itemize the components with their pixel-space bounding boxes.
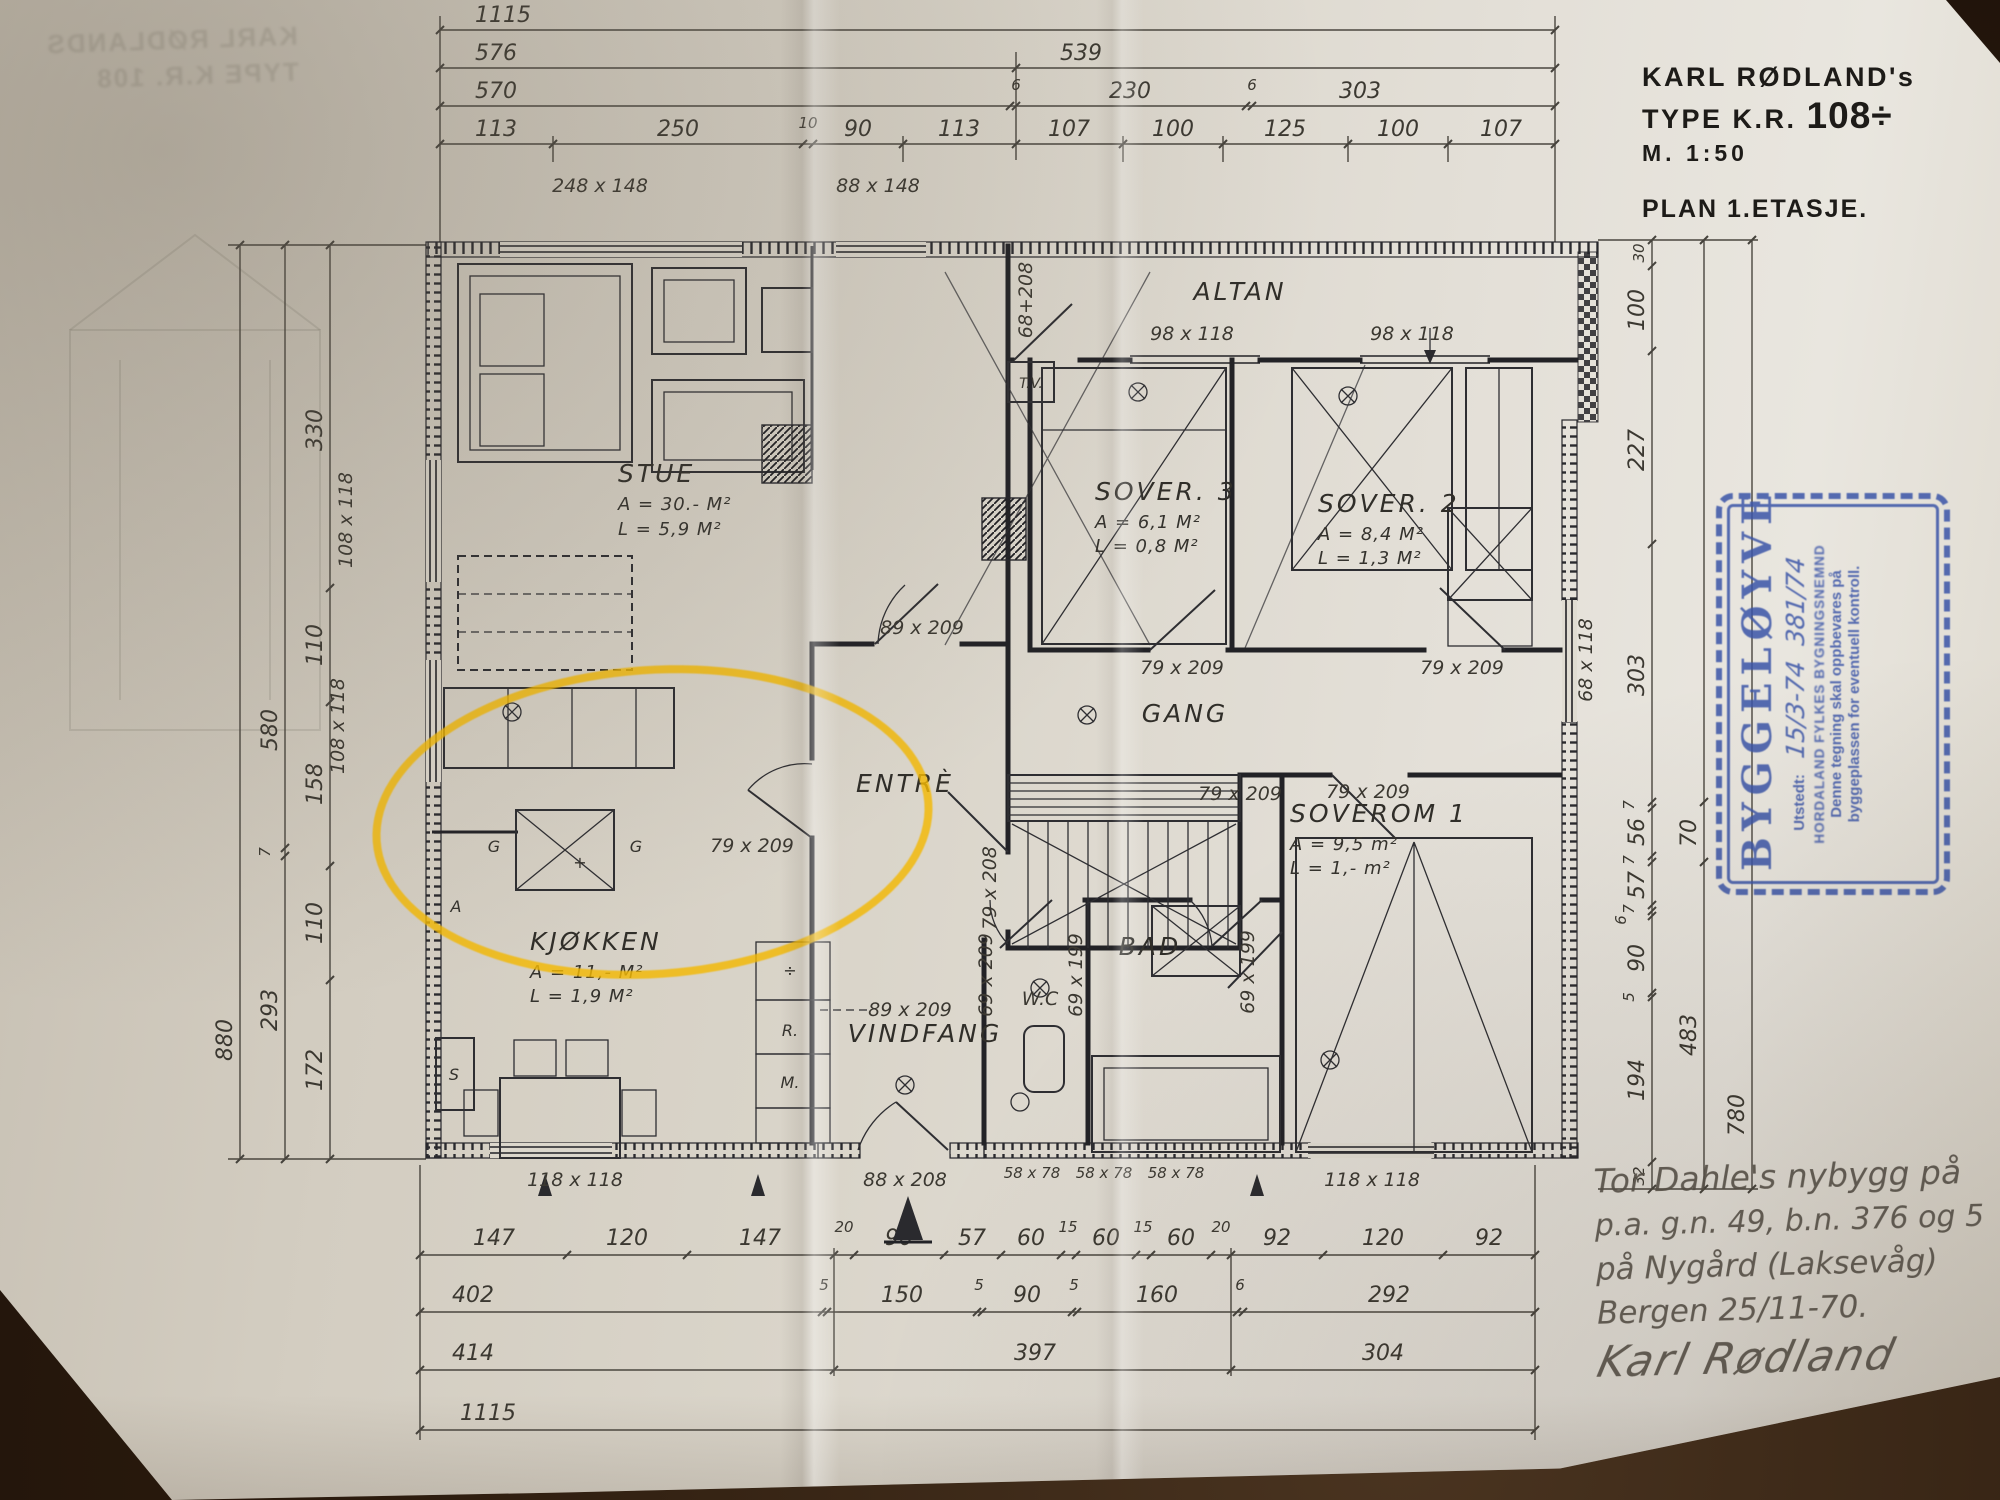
dim-label: 304 bbox=[1362, 1341, 1404, 1366]
dim-label: 15 bbox=[1058, 1218, 1077, 1236]
dim-label: 107 bbox=[1480, 117, 1522, 142]
dim-label: 580 bbox=[258, 709, 283, 751]
door-dim-label: 79 x 209 bbox=[1420, 657, 1504, 679]
dim-label: 570 bbox=[475, 79, 517, 104]
door-dim-label: 68+208 bbox=[1015, 262, 1037, 338]
type-prefix: TYPE K.R. bbox=[1642, 104, 1797, 134]
room-label-sover3: SOVER. 3 bbox=[1095, 477, 1237, 506]
note-line: på Nygård (Laksevåg) bbox=[1595, 1240, 2000, 1288]
dim-label: 60 bbox=[1017, 1226, 1045, 1251]
stamp-case-number: 381/74 bbox=[1781, 555, 1810, 647]
dim-label: 158 bbox=[303, 763, 328, 805]
dim-label: 293 bbox=[258, 989, 283, 1031]
window-dim-label: 118 x 118 bbox=[527, 1169, 623, 1191]
dim-label: 100 bbox=[1152, 117, 1194, 142]
dim-label: 6 bbox=[1235, 1276, 1245, 1294]
dim-label: 90 bbox=[844, 117, 872, 142]
room-label-gang: GANG bbox=[1142, 699, 1229, 728]
dim-label: 57 bbox=[958, 1226, 986, 1251]
dim-label: 6 bbox=[1247, 76, 1257, 94]
door-dim-label: 79 x 209 bbox=[1326, 781, 1410, 803]
door-dim-label: 88 x 208 bbox=[863, 1169, 947, 1191]
handwritten-note: Tor Dahle's nybygg på p.a. g.n. 49, b.n.… bbox=[1593, 1150, 2000, 1387]
room-label-tv: T.V. bbox=[1019, 376, 1043, 392]
note-line: Bergen 25/11-70. bbox=[1597, 1284, 2000, 1332]
approval-stamp: BYGGELØYVE Utstedt: 15/3-74 381/74 HORDA… bbox=[1727, 504, 1939, 884]
window-dim-label: 108 x 118 bbox=[327, 678, 349, 774]
dim-label: 107 bbox=[1048, 117, 1090, 142]
dim-label: 5 bbox=[1069, 1276, 1079, 1294]
house-type: TYPE K.R. 108÷ bbox=[1642, 95, 1982, 137]
dim-label: 780 bbox=[1725, 1094, 1750, 1136]
stamp-issued-label: Utstedt: bbox=[1791, 774, 1808, 831]
dim-label: 172 bbox=[303, 1049, 328, 1091]
photographed-floor-plan: KARL RØDLANDS TYPE K.R. 108 bbox=[0, 0, 2000, 1500]
window-dim-label: 98 x 118 bbox=[1370, 323, 1454, 345]
title-block: KARL RØDLAND's TYPE K.R. 108÷ M. 1:50 PL… bbox=[1642, 62, 1982, 224]
room-load: L = 1,3 M² bbox=[1318, 548, 1422, 569]
window-dim-label: 68 x 118 bbox=[1575, 618, 1597, 702]
dim-label: 292 bbox=[1368, 1283, 1410, 1308]
dim-label: 5 bbox=[974, 1276, 984, 1294]
dim-label: 330 bbox=[303, 409, 328, 451]
dim-label: 880 bbox=[213, 1019, 238, 1061]
dim-label: 7 bbox=[1620, 855, 1638, 865]
light-symbol bbox=[896, 1076, 914, 1094]
stamp-note: Denne tegning skal oppbevares på bbox=[1828, 517, 1845, 871]
door-dim-label: 79 x 209 bbox=[1140, 657, 1224, 679]
dim-label: 250 bbox=[657, 117, 699, 142]
stamp-frame: BYGGELØYVE Utstedt: 15/3-74 381/74 HORDA… bbox=[1727, 504, 1939, 884]
dim-label: 70 bbox=[1677, 819, 1702, 847]
room-label-soverom1: SOVEROM 1 bbox=[1290, 799, 1468, 828]
architect-name: KARL RØDLAND's bbox=[1642, 62, 1982, 93]
dim-label: 303 bbox=[1339, 79, 1381, 104]
room-label-altan: ALTAN bbox=[1191, 277, 1286, 306]
stamp-note: byggeplassen for eventuell kontroll. bbox=[1846, 517, 1863, 871]
appliance-mark: ÷ bbox=[783, 961, 796, 980]
dim-label: 147 bbox=[739, 1226, 781, 1251]
plan-labels: STUE A = 30.- M² L = 5,9 M² SOVER. 3 A =… bbox=[327, 175, 1597, 1191]
dim-label: 20 bbox=[834, 1218, 853, 1236]
signature: Karl Rødland bbox=[1593, 1326, 2000, 1388]
room-label-stue: STUE bbox=[618, 459, 695, 488]
dim-label: 160 bbox=[1136, 1283, 1178, 1308]
dim-label: 5 bbox=[819, 1276, 829, 1294]
window-dim-label: 58 x 78 bbox=[1004, 1164, 1061, 1182]
room-label-bad: BAD bbox=[1119, 932, 1182, 961]
dim-label: 402 bbox=[452, 1283, 494, 1308]
dim-label: 147 bbox=[473, 1226, 515, 1251]
dim-label: 7 bbox=[1620, 904, 1638, 914]
room-label-sover2: SOVER. 2 bbox=[1318, 489, 1460, 518]
dim-label: 5 bbox=[1620, 992, 1638, 1002]
dim-label: 303 bbox=[1625, 654, 1650, 696]
dim-label: 113 bbox=[475, 117, 517, 142]
note-line: p.a. g.n. 49, b.n. 376 og 5 bbox=[1594, 1197, 2000, 1244]
room-area: A = 8,4 M² bbox=[1317, 524, 1424, 545]
door-dim-label: 69 x 199 bbox=[1065, 933, 1087, 1017]
dim-label: 90 bbox=[1013, 1283, 1041, 1308]
room-load: L = 0,8 M² bbox=[1095, 536, 1199, 557]
dim-label: 60 bbox=[1167, 1226, 1195, 1251]
door-dim-label: 89 x 209 bbox=[880, 617, 964, 639]
dim-label: 30 bbox=[1630, 243, 1648, 262]
dim-label: 539 bbox=[1060, 41, 1102, 66]
window-dim-label: 108 x 118 bbox=[335, 472, 357, 568]
door-dim-label: 89 x 209 bbox=[868, 999, 952, 1021]
room-label-vindfang: VINDFANG bbox=[848, 1019, 1003, 1048]
dim-label: 414 bbox=[452, 1341, 494, 1366]
dim-label: 110 bbox=[303, 902, 328, 944]
room-area: A = 6,1 M² bbox=[1094, 512, 1201, 533]
dim-label: 397 bbox=[1014, 1341, 1056, 1366]
room-area: A = 9,5 m² bbox=[1289, 834, 1398, 855]
dim-label: 483 bbox=[1677, 1014, 1702, 1056]
light-symbol bbox=[1321, 1051, 1339, 1069]
entry-arrow bbox=[751, 1174, 765, 1196]
entry-arrow bbox=[1250, 1174, 1264, 1196]
window-dim-label: 118 x 118 bbox=[1324, 1169, 1420, 1191]
dim-label: 194 bbox=[1625, 1059, 1650, 1101]
dim-label: 15 bbox=[1133, 1218, 1152, 1236]
appliance-mark: M. bbox=[781, 1073, 800, 1092]
dim-label: 92 bbox=[1475, 1226, 1503, 1251]
light-symbol bbox=[1078, 706, 1096, 724]
window-dim-label: 98 x 118 bbox=[1150, 323, 1234, 345]
light-symbol bbox=[1129, 383, 1147, 401]
door-dim-label: 79 x 208 bbox=[979, 846, 1001, 930]
appliance-mark: R. bbox=[782, 1021, 798, 1040]
dim-label: 150 bbox=[881, 1283, 923, 1308]
dim-label: 120 bbox=[606, 1226, 648, 1251]
appliance-mark: S bbox=[449, 1065, 459, 1084]
dim-label: 7 bbox=[256, 847, 274, 857]
light-symbol bbox=[1339, 387, 1357, 405]
window-dim-label: 88 x 148 bbox=[836, 175, 920, 197]
dim-label: 60 bbox=[1092, 1226, 1120, 1251]
room-label-wc: W.C bbox=[1022, 988, 1059, 1010]
dim-label: 227 bbox=[1625, 429, 1650, 471]
window-dim-label: 58 x 78 bbox=[1076, 1164, 1133, 1182]
room-load: L = 1,- m² bbox=[1290, 858, 1391, 879]
dim-label: 6 bbox=[1011, 76, 1021, 94]
plan-title: PLAN 1.ETASJE. bbox=[1642, 195, 1982, 224]
door-dim-label: 69 x 199 bbox=[1237, 930, 1259, 1014]
window-dim-label: 58 x 78 bbox=[1148, 1164, 1205, 1182]
drawing-scale: M. 1:50 bbox=[1642, 140, 1982, 167]
drawing-paper: KARL RØDLANDS TYPE K.R. 108 bbox=[0, 0, 2000, 1500]
dim-label: 1115 bbox=[460, 1401, 516, 1426]
room-load: L = 1,9 M² bbox=[530, 986, 634, 1007]
dim-label: 92 bbox=[1263, 1226, 1291, 1251]
door-dim-label: 79 x 209 bbox=[1198, 783, 1282, 805]
room-area: A = 30.- M² bbox=[617, 494, 731, 515]
dim-label: 20 bbox=[1211, 1218, 1230, 1236]
dim-label: 120 bbox=[1362, 1226, 1404, 1251]
stamp-issued-date: 15/3-74 bbox=[1781, 659, 1810, 760]
dim-label: 100 bbox=[1377, 117, 1419, 142]
dim-label: 230 bbox=[1109, 79, 1151, 104]
dim-label: 576 bbox=[475, 41, 517, 66]
dim-label: 90 bbox=[1625, 944, 1650, 972]
stamp-title: BYGGELØYVE bbox=[1734, 517, 1781, 871]
dim-label: 110 bbox=[303, 624, 328, 666]
dim-label: 57 bbox=[1625, 871, 1650, 899]
dim-label: 100 bbox=[1625, 289, 1650, 331]
stamp-authority: HORDALAND FYLKES BYGNINGSNEMND bbox=[1812, 517, 1827, 871]
dim-label: 6 bbox=[1612, 915, 1630, 925]
dim-label: 10 bbox=[798, 114, 817, 132]
dim-label: 1115 bbox=[475, 3, 531, 28]
door-dim-label: 69 x 209 bbox=[975, 933, 997, 1017]
dim-label: 7 bbox=[1620, 800, 1638, 810]
dim-label: 56 bbox=[1625, 818, 1650, 846]
type-number: 108÷ bbox=[1807, 95, 1893, 136]
room-load: L = 5,9 M² bbox=[618, 519, 722, 540]
dim-label: 125 bbox=[1264, 117, 1306, 142]
window-dim-label: 248 x 148 bbox=[552, 175, 648, 197]
ghost-elevation-sketch bbox=[70, 235, 320, 730]
dim-label: 113 bbox=[938, 117, 980, 142]
